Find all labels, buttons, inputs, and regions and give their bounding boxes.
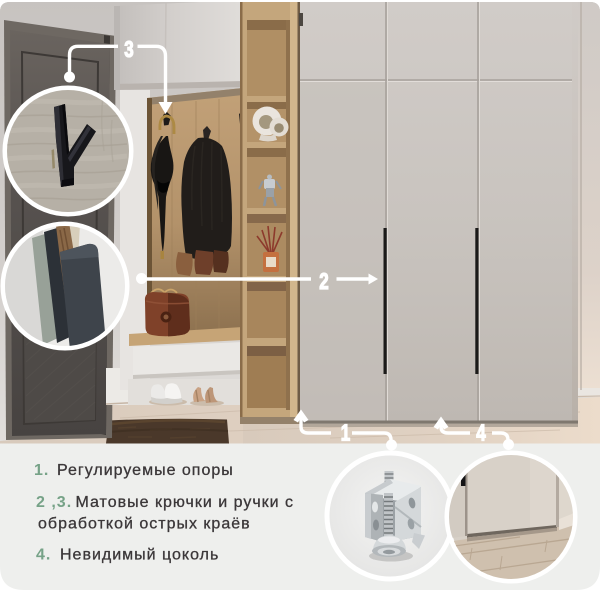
svg-text:Матовые крючки и ручки с: Матовые крючки и ручки с — [76, 494, 295, 511]
svg-text:1.: 1. — [34, 462, 49, 479]
svg-text:4: 4 — [476, 421, 486, 446]
svg-text:Невидимый цоколь: Невидимый цоколь — [60, 547, 219, 564]
svg-text:Регулируемые опоры: Регулируемые опоры — [57, 462, 234, 479]
svg-text:3: 3 — [124, 38, 133, 63]
svg-text:2 ,3.: 2 ,3. — [36, 494, 72, 511]
svg-text:2: 2 — [319, 270, 328, 295]
svg-text:4.: 4. — [36, 547, 51, 564]
svg-text:обработкой острых краёв: обработкой острых краёв — [38, 516, 251, 533]
svg-text:1: 1 — [341, 421, 350, 446]
